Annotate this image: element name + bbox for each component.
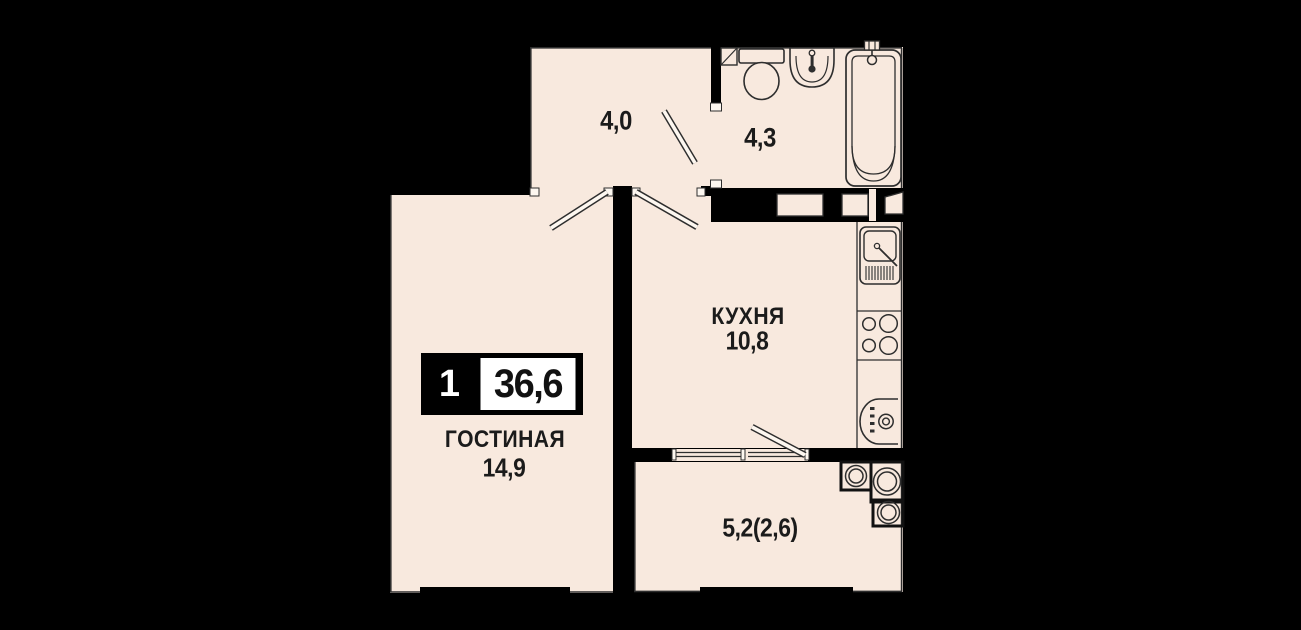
living-room-area-label: 14,9 [483,453,526,484]
balcony-window-band [700,587,853,605]
washer-tick [870,422,875,425]
washer-tick [870,430,875,433]
hallway-area-label: 4,0 [600,106,632,137]
door-jamb [530,188,539,196]
kitchen-floor-left [630,195,713,450]
wall-niche-1 [777,194,823,216]
living-window-band [420,587,570,605]
balcony-window-opening [672,449,746,461]
toilet-tank [739,49,784,63]
bathtub-mixer [865,41,880,50]
apartment-info-badge: 1 36,6 [421,353,583,415]
room-floors [390,47,903,593]
balcony-window-door-block [672,449,809,461]
door-jamb [697,188,705,196]
sink-drain [874,243,879,248]
window-jamb [672,449,676,460]
total-area: 36,6 [481,358,576,410]
window-jamb [805,449,809,460]
floor-plan-drawing [0,0,1301,630]
rooms-count: 1 [421,353,478,415]
kitchen-area-label: 10,8 [726,326,769,357]
basin-faucet-top [809,50,815,56]
bathtub-faucet-ball [868,56,877,65]
basin-faucet-stem [811,56,814,67]
washer-tick [870,415,875,418]
basin-faucet-ball [808,65,815,72]
door-jamb [711,180,722,188]
washer-tick [870,407,875,410]
living-kitchen-wall [613,186,632,596]
bathtub-icon [846,41,901,186]
kitchen-sink-icon [860,227,900,284]
balcony-area-label: 5,2(2,6) [722,513,797,544]
wall-niche-2 [842,194,868,216]
corner-box-icon [721,48,737,65]
wall-slot [869,189,876,221]
hallway-bathroom-wall [711,45,721,111]
bathroom-area-label: 4,3 [744,123,776,154]
washing-machine-icon [860,399,898,444]
door-jamb [711,103,722,111]
window-jamb [741,449,745,460]
toilet-bowl [744,63,779,100]
floor-plan: 4,0 4,3 КУХНЯ 10,8 ГОСТИНАЯ 14,9 5,2(2,6… [0,0,1301,630]
living-room-name-label: ГОСТИНАЯ [445,426,565,454]
wash-basin-icon [790,48,834,87]
